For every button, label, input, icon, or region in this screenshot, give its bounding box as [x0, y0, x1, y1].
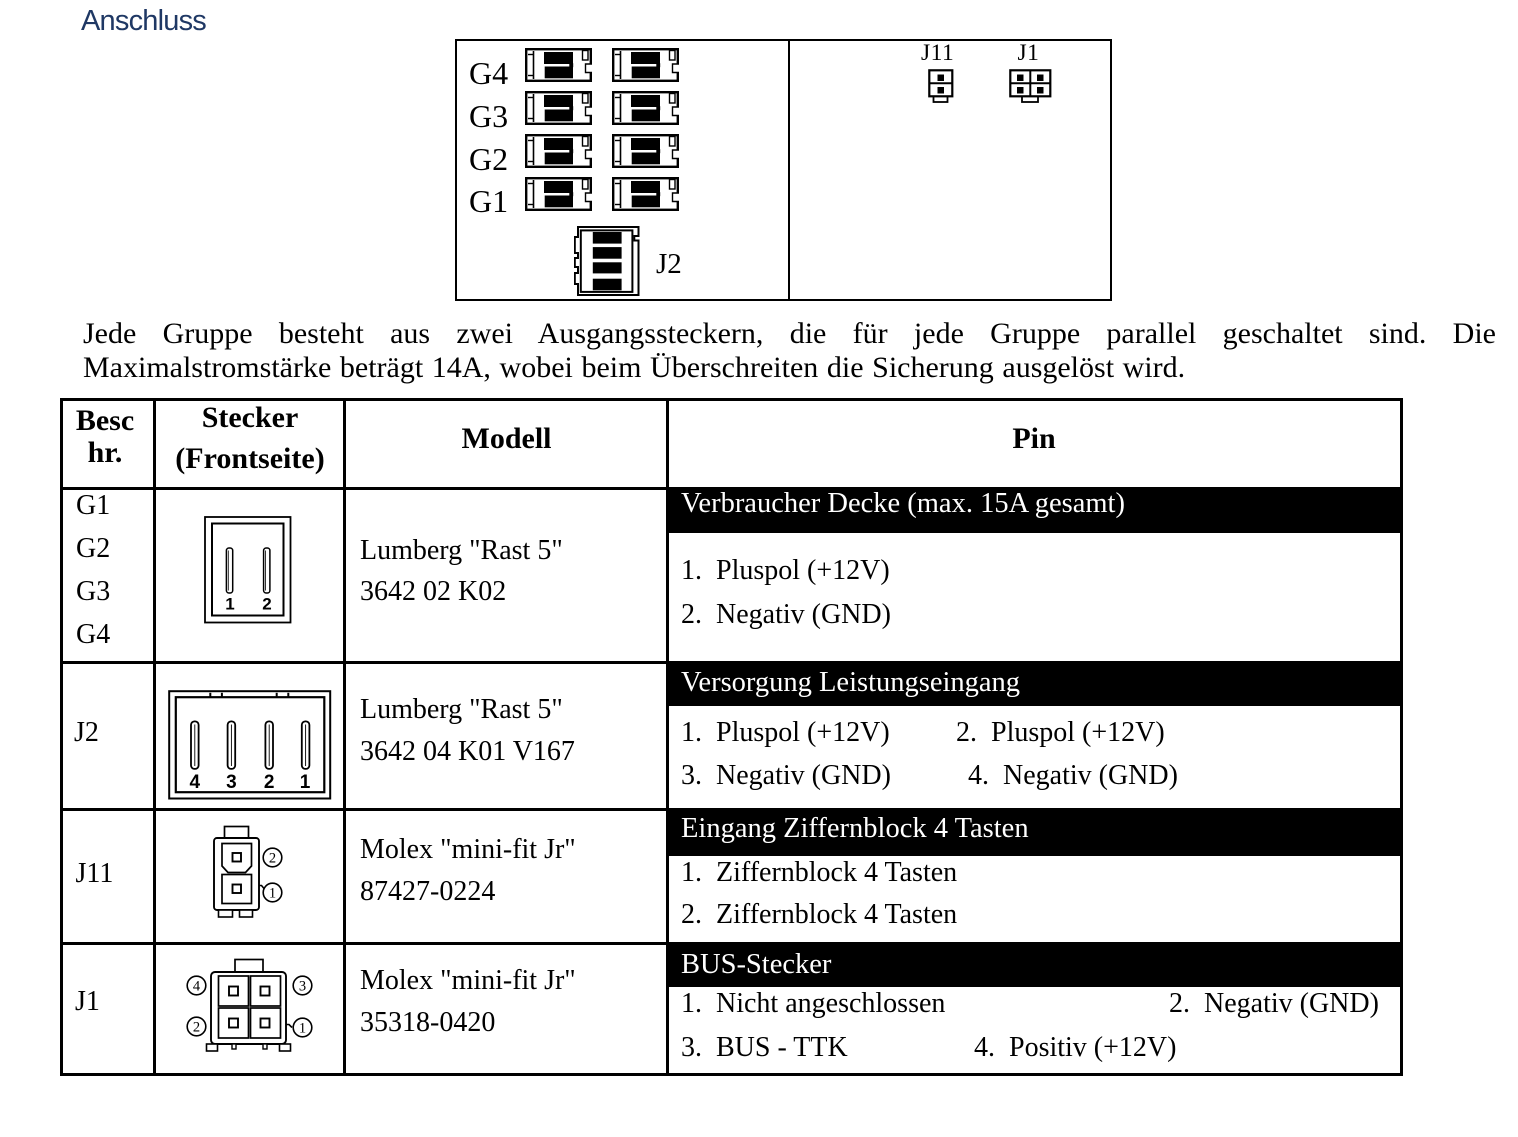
svg-text:3: 3: [299, 979, 306, 995]
svg-text:4: 4: [190, 772, 201, 793]
svg-text:2: 2: [193, 1020, 200, 1036]
svg-text:1: 1: [299, 1021, 306, 1037]
svg-text:1: 1: [300, 772, 311, 793]
svg-text:2: 2: [264, 772, 275, 793]
svg-text:2: 2: [262, 595, 271, 614]
svg-text:2: 2: [269, 851, 276, 867]
svg-text:3: 3: [226, 772, 237, 793]
svg-text:1: 1: [269, 886, 276, 902]
svg-text:4: 4: [193, 979, 201, 995]
svg-text:1: 1: [225, 595, 234, 614]
